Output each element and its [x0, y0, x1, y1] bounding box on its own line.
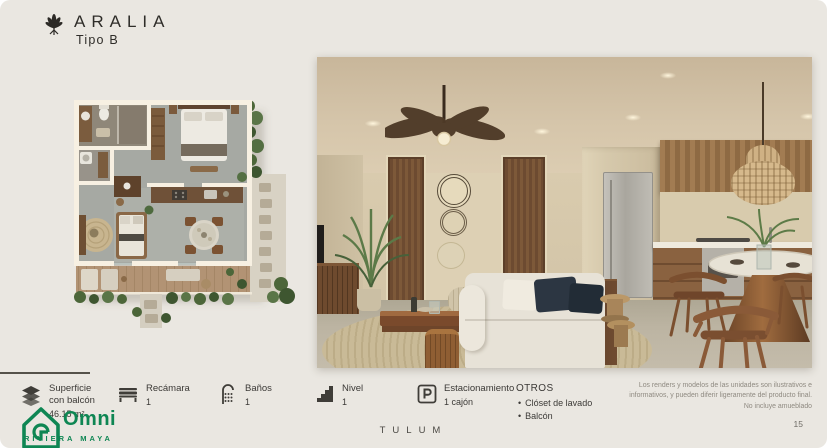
plan-kitchen: [151, 187, 243, 203]
plan-dining: [185, 217, 223, 254]
ceiling-spotlight: [622, 113, 644, 122]
tv-screen: [317, 225, 324, 263]
sofa-arm: [459, 285, 485, 351]
ceiling-spotlight: [657, 71, 679, 80]
disclaimer-line: No incluye amueblado: [492, 402, 812, 412]
agave-plant-icon: [40, 11, 68, 41]
unit-type-subtitle: Tipo B: [76, 33, 119, 47]
watermark-brand: Omni: [63, 408, 116, 431]
interior-render: [317, 57, 812, 368]
plan-wardrobe: [151, 108, 165, 160]
spec-label: Nivel: [342, 383, 363, 395]
wall-plate-decor: [437, 242, 465, 269]
spec-value: 1: [146, 397, 190, 407]
spec-banos: Baños 1: [218, 383, 272, 407]
plan-bathroom: [78, 105, 148, 147]
stairs-icon: [315, 384, 335, 404]
floor-plan: [54, 88, 299, 330]
sofa: [465, 273, 605, 368]
wood-stools: [600, 294, 635, 347]
plan-balcony: [74, 266, 252, 295]
plan-laundry: [78, 150, 110, 181]
pendant-lamp: [731, 161, 795, 205]
spec-value: 1: [245, 397, 272, 407]
ceiling-spotlight: [362, 119, 384, 128]
surface-layers-icon: [20, 384, 42, 406]
watermark-tagline: RIVIERA MAYA: [24, 434, 113, 443]
spec-nivel: Nivel 1: [315, 383, 363, 407]
wall-plate-decor: [440, 209, 467, 236]
bed-icon: [117, 384, 139, 404]
legal-disclaimer: Los renders y modelos de las unidades so…: [492, 381, 812, 412]
decor-plate: [418, 307, 433, 312]
wall-plate-decor: [437, 174, 471, 208]
shower-icon: [218, 384, 238, 405]
pendant-cord: [762, 82, 764, 148]
wood-side-stool: [425, 329, 459, 368]
sofa-pillow: [502, 279, 538, 311]
decor-bottle: [411, 297, 417, 312]
footer-divider: [0, 372, 90, 374]
page-title: ARALIA: [74, 12, 170, 32]
spec-label: Recámara: [146, 383, 190, 395]
sofa-seam: [465, 319, 605, 321]
spec-label: Baños: [245, 383, 272, 395]
ceiling-fan: [385, 83, 505, 171]
presentation-slide: ARALIA Tipo B: [0, 0, 827, 448]
ceiling-spotlight: [797, 112, 812, 121]
potted-palm: [331, 205, 411, 297]
ceiling-spotlight: [531, 127, 553, 136]
page-number: 15: [794, 419, 803, 429]
dining-set: [597, 207, 812, 368]
location-label: TULUM: [0, 425, 827, 436]
disclaimer-line: informativos, y pueden diferir ligeramen…: [492, 391, 812, 401]
plant-pot: [357, 289, 381, 311]
spec-value: 1: [342, 397, 363, 407]
disclaimer-line: Los renders y modelos de las unidades so…: [492, 381, 812, 391]
parking-icon: [417, 384, 437, 404]
spec-recamara: Recámara 1: [117, 383, 190, 407]
